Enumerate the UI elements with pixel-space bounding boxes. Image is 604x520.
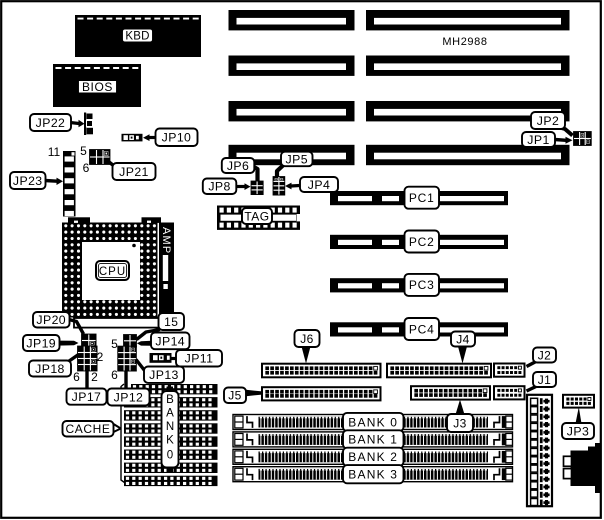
svg-text:JP17: JP17 xyxy=(72,390,102,404)
svg-text:J4: J4 xyxy=(456,332,469,346)
svg-text:CACHE: CACHE xyxy=(65,422,110,436)
svg-text:JP22: JP22 xyxy=(36,116,66,130)
svg-text:6: 6 xyxy=(111,368,118,382)
svg-text:B: B xyxy=(166,394,174,406)
svg-text:A: A xyxy=(166,408,174,420)
svg-text:JP4: JP4 xyxy=(308,178,330,192)
svg-text:6: 6 xyxy=(73,370,80,384)
svg-text:BANK 1: BANK 1 xyxy=(348,433,398,447)
svg-text:BANK 0: BANK 0 xyxy=(348,415,398,429)
svg-text:BANK 3: BANK 3 xyxy=(348,468,398,482)
svg-text:2: 2 xyxy=(91,370,98,384)
svg-text:JP8: JP8 xyxy=(208,180,230,194)
svg-text:JP12: JP12 xyxy=(114,390,144,404)
svg-text:JP11: JP11 xyxy=(185,352,214,366)
svg-text:JP19: JP19 xyxy=(26,336,56,350)
svg-text:J2: J2 xyxy=(538,348,551,362)
svg-text:BIOS: BIOS xyxy=(82,80,113,94)
svg-text:CPU: CPU xyxy=(99,266,126,278)
svg-text:AMP: AMP xyxy=(160,227,172,254)
svg-text:JP6: JP6 xyxy=(227,159,249,173)
svg-text:JP1: JP1 xyxy=(527,133,549,147)
svg-text:JP5: JP5 xyxy=(286,152,308,166)
svg-text:JP18: JP18 xyxy=(35,362,65,376)
svg-text:JP13: JP13 xyxy=(149,368,179,382)
svg-text:15: 15 xyxy=(164,315,178,329)
svg-text:5: 5 xyxy=(111,337,118,351)
svg-text:KBD: KBD xyxy=(125,31,149,43)
svg-text:N: N xyxy=(166,421,174,433)
svg-text:JP10: JP10 xyxy=(162,131,192,145)
svg-text:J6: J6 xyxy=(300,332,313,346)
svg-text:11: 11 xyxy=(48,145,61,159)
svg-text:PC4: PC4 xyxy=(409,322,435,336)
svg-text:MH2988: MH2988 xyxy=(442,36,487,48)
svg-text:BANK 2: BANK 2 xyxy=(348,450,398,464)
svg-text:J3: J3 xyxy=(453,416,466,430)
svg-text:TAG: TAG xyxy=(244,209,269,223)
svg-text:PC3: PC3 xyxy=(409,278,435,292)
svg-text:JP21: JP21 xyxy=(119,165,149,179)
svg-text:JP20: JP20 xyxy=(36,313,66,327)
svg-text:PC1: PC1 xyxy=(409,191,435,205)
svg-text:J5: J5 xyxy=(228,389,241,403)
svg-text:2: 2 xyxy=(97,350,104,364)
svg-text:JP2: JP2 xyxy=(537,114,559,128)
svg-text:JP14: JP14 xyxy=(155,334,185,348)
svg-text:0: 0 xyxy=(167,450,173,462)
svg-text:JP23: JP23 xyxy=(13,174,43,188)
svg-text:JP3: JP3 xyxy=(567,424,589,438)
svg-text:6: 6 xyxy=(83,161,90,175)
svg-text:K: K xyxy=(166,435,174,447)
svg-text:J1: J1 xyxy=(538,373,551,387)
svg-text:5: 5 xyxy=(80,144,87,158)
svg-text:PC2: PC2 xyxy=(409,235,435,249)
